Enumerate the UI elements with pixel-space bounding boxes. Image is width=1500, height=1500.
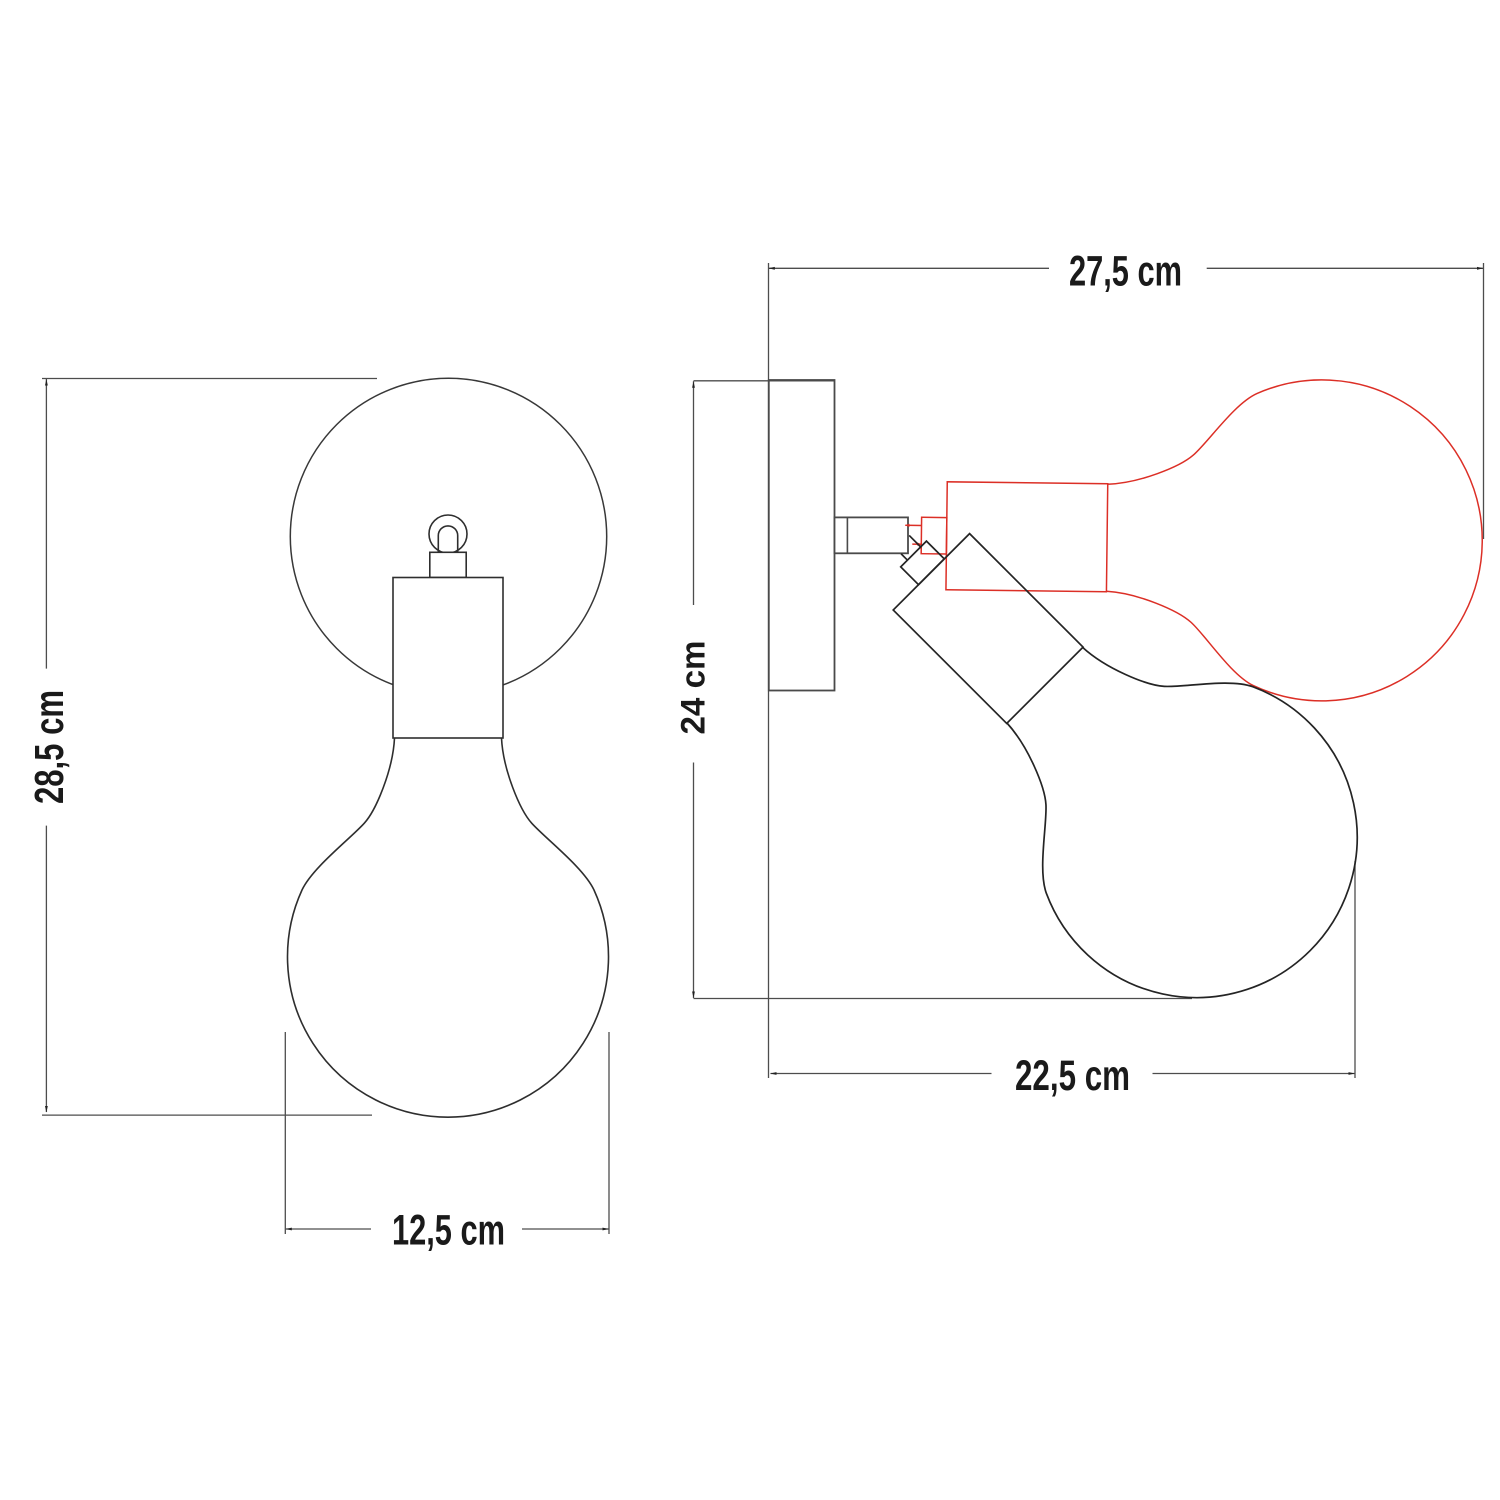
- svg-text:28,5 cm: 28,5 cm: [26, 690, 72, 804]
- svg-text:12,5 cm: 12,5 cm: [392, 1207, 505, 1255]
- svg-text:27,5 cm: 27,5 cm: [1069, 247, 1182, 295]
- svg-text:22,5 cm: 22,5 cm: [1015, 1052, 1130, 1100]
- svg-text:24 cm: 24 cm: [675, 641, 713, 735]
